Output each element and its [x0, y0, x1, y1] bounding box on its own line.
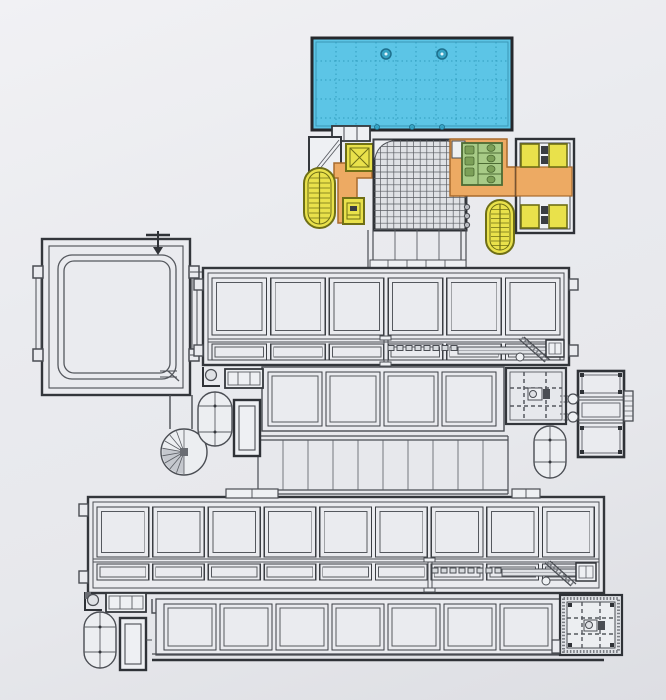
hoist-end-box	[576, 563, 596, 581]
oval-stair-tower	[304, 168, 335, 228]
tank-capsule	[84, 612, 116, 668]
plant-room	[552, 595, 622, 655]
service-unit	[106, 593, 146, 612]
fixture-circle	[568, 394, 578, 404]
mid-right-service-cluster	[506, 368, 633, 478]
elevator-cab	[549, 205, 567, 228]
column-circle-with-wall	[203, 367, 220, 386]
elevator-cab	[521, 144, 539, 167]
elevator-cab	[521, 205, 539, 228]
bottom-left-service-cluster	[84, 592, 152, 670]
square-pavilion	[33, 231, 203, 395]
fixture-circle	[568, 412, 578, 422]
link-shaft	[368, 230, 466, 269]
elevator-bank	[516, 139, 574, 233]
service-unit	[225, 369, 263, 388]
column-circle-with-wall	[85, 592, 102, 610]
stair-corridor	[170, 395, 192, 429]
stacked-rooms	[560, 371, 633, 457]
lower-hall	[79, 489, 604, 593]
circulation-bridge-right	[516, 167, 572, 196]
mid-terrace	[258, 367, 508, 494]
roof-round-column	[381, 49, 391, 59]
elevator-cab	[549, 144, 567, 167]
plan-canvas	[0, 0, 666, 700]
top-entry-block	[304, 38, 574, 269]
tank-capsule	[198, 392, 232, 446]
elevator-core	[346, 144, 373, 171]
elevator-core	[343, 198, 364, 224]
duct-room	[120, 618, 152, 670]
plant-room	[506, 368, 566, 424]
roof-round-column	[437, 49, 447, 59]
hoist-end-box	[546, 340, 564, 357]
oval-stair-tower	[486, 200, 514, 254]
wc-block	[462, 143, 502, 185]
basement-row	[152, 599, 604, 660]
glazed-roof-canopy	[312, 38, 512, 130]
side-stub	[552, 640, 560, 653]
upper-hall	[194, 268, 578, 366]
plan-sheet	[0, 0, 666, 700]
tank-capsule	[534, 426, 566, 478]
duct-room	[234, 400, 260, 456]
stepped-spine	[258, 436, 508, 494]
